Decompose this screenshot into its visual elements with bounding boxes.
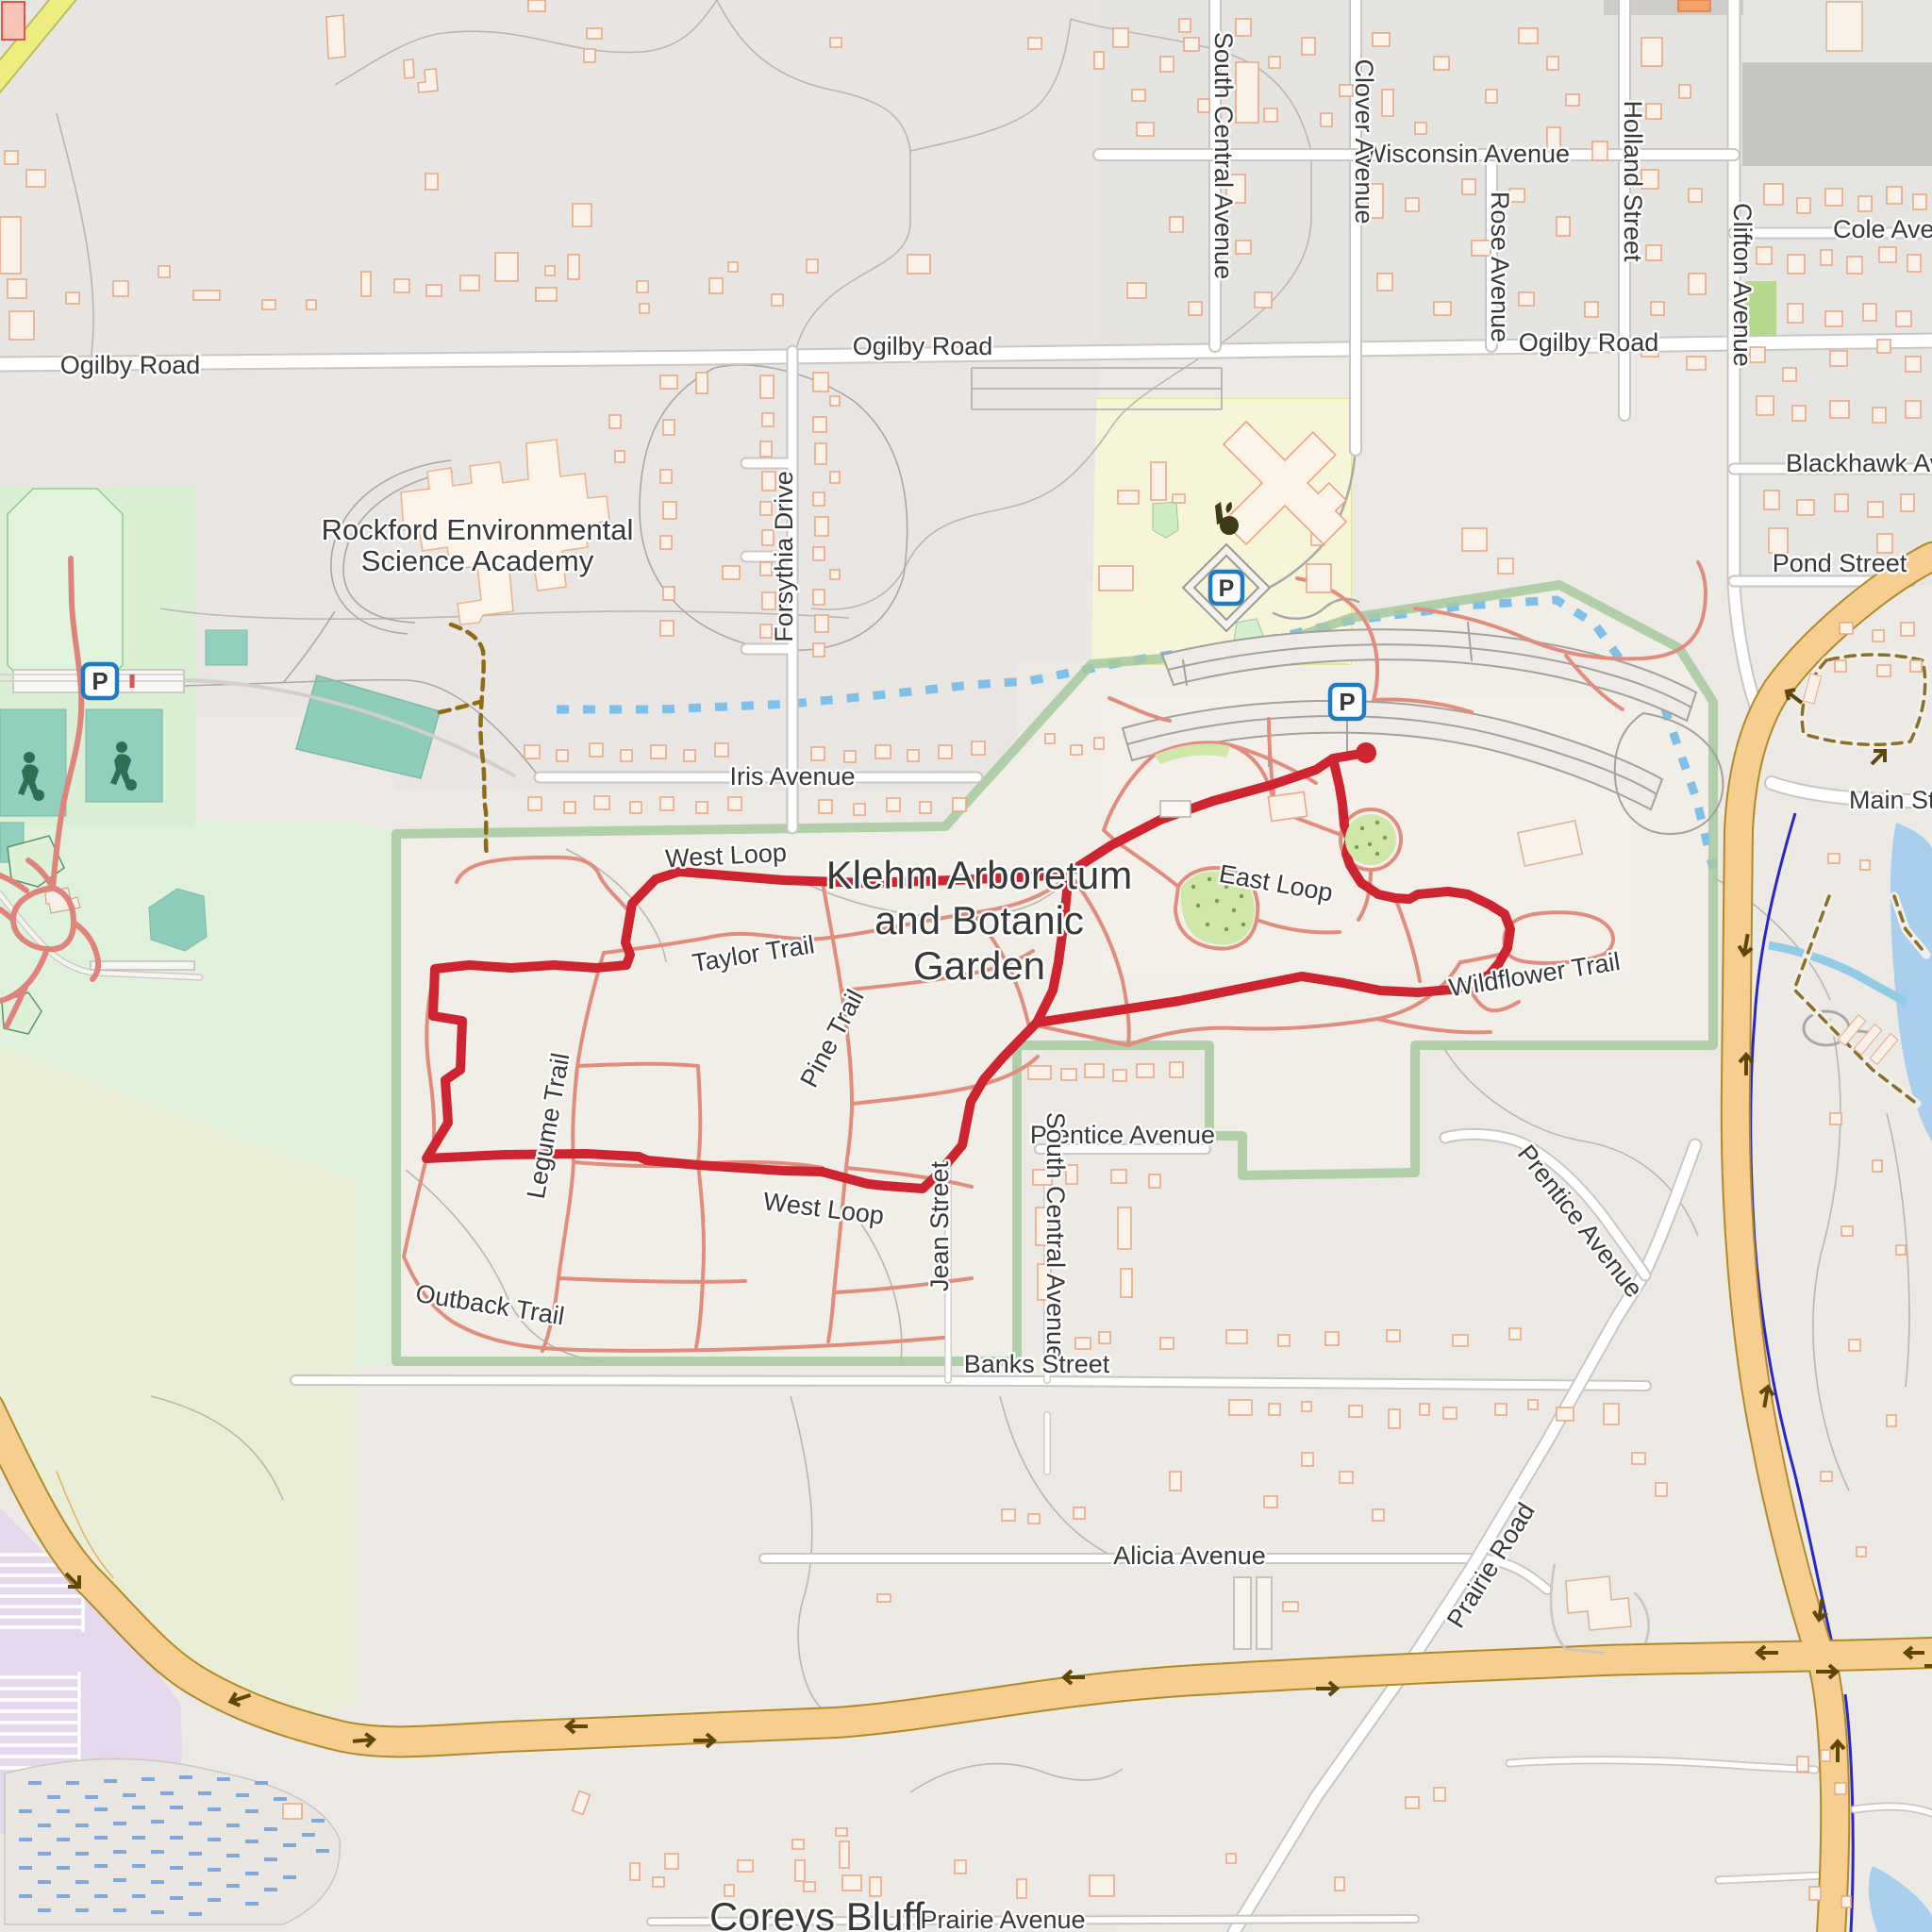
svg-text:Garden: Garden: [913, 943, 1045, 988]
svg-text:Prairie Avenue: Prairie Avenue: [920, 1906, 1085, 1932]
svg-text:South Central Avenue: South Central Avenue: [1209, 32, 1238, 279]
svg-text:Clover Avenue: Clover Avenue: [1350, 58, 1378, 224]
svg-text:Forsythia Drive: Forsythia Drive: [770, 471, 798, 642]
svg-text:Jean Street: Jean Street: [925, 1160, 954, 1291]
svg-text:and Botanic: and Botanic: [874, 898, 1084, 942]
svg-text:P: P: [92, 667, 108, 695]
svg-text:Rockford Environmental: Rockford Environmental: [322, 513, 634, 546]
svg-text:Holland Street: Holland Street: [1619, 100, 1647, 262]
svg-text:Banks Street: Banks Street: [964, 1350, 1110, 1378]
svg-text:Ogilby Road: Ogilby Road: [1519, 328, 1659, 357]
svg-text:Coreys Bluff: Coreys Bluff: [709, 1894, 924, 1932]
svg-text:Clifton Avenue: Clifton Avenue: [1728, 203, 1757, 367]
svg-text:Wisconsin Avenue: Wisconsin Avenue: [1362, 140, 1570, 168]
svg-text:Pond Street: Pond Street: [1773, 549, 1907, 577]
svg-text:South Central Avenue: South Central Avenue: [1041, 1112, 1070, 1359]
svg-text:Cole Avenue: Cole Avenue: [1833, 215, 1932, 243]
svg-text:Blackhawk Avenue: Blackhawk Avenue: [1786, 449, 1932, 477]
svg-text:P: P: [1339, 688, 1355, 716]
svg-text:Main Street: Main Street: [1849, 786, 1932, 814]
svg-text:P: P: [1219, 575, 1235, 602]
svg-text:Rose Avenue: Rose Avenue: [1486, 192, 1514, 342]
svg-text:Ogilby Road: Ogilby Road: [853, 332, 993, 360]
svg-text:Ogilby Road: Ogilby Road: [60, 351, 201, 379]
svg-text:Science Academy: Science Academy: [361, 544, 594, 577]
svg-text:Alicia Avenue: Alicia Avenue: [1113, 1541, 1266, 1570]
svg-text:Klehm Arboretum: Klehm Arboretum: [826, 853, 1132, 897]
svg-text:Iris Avenue: Iris Avenue: [729, 762, 855, 791]
